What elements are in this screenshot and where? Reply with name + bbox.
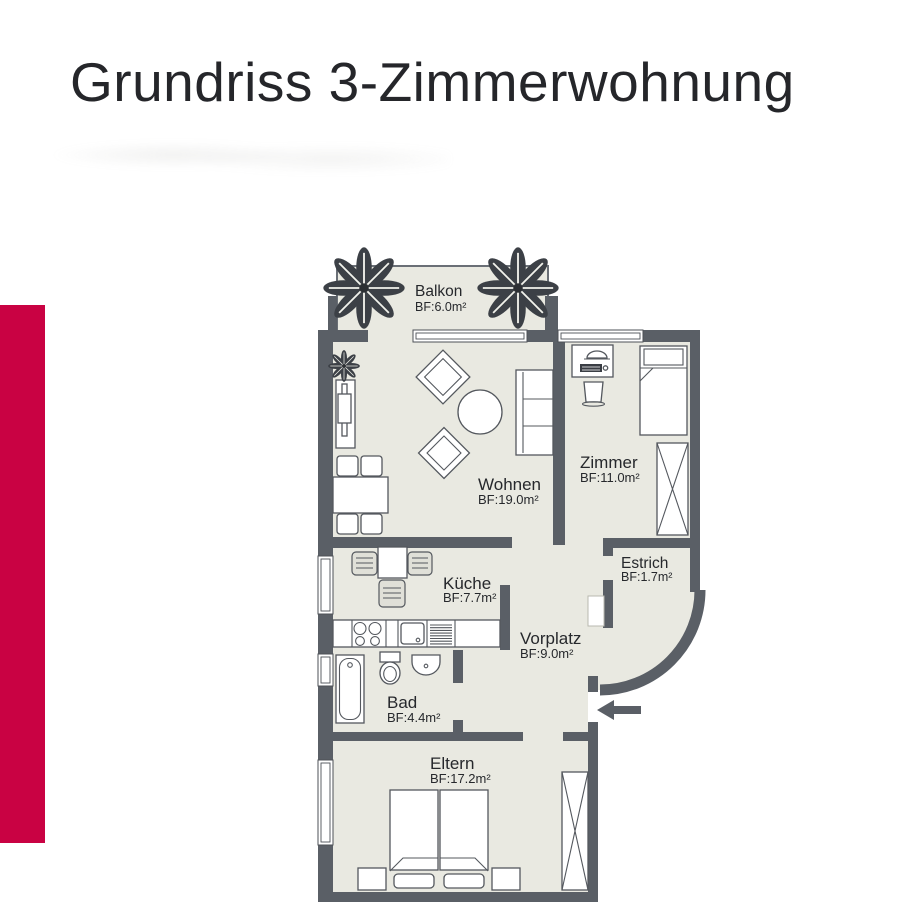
window-bad bbox=[318, 654, 333, 686]
plant-icon bbox=[323, 247, 404, 328]
window-eltern bbox=[318, 760, 333, 845]
estrich-door-leaf bbox=[588, 596, 604, 626]
mouse-icon bbox=[603, 366, 607, 370]
room-area-estrich: BF:1.7m² bbox=[621, 570, 672, 584]
toilet-icon bbox=[380, 652, 400, 684]
entrance-door-opening bbox=[588, 692, 598, 722]
room-area-bad: BF:4.4m² bbox=[387, 710, 441, 725]
sink-icon bbox=[401, 623, 424, 644]
floor-plan-drawing: Balkon BF:6.0m² Wohnen BF:19.0m² Zimmer … bbox=[0, 0, 920, 922]
room-label-balkon: Balkon bbox=[415, 283, 462, 300]
window-zimmer bbox=[558, 330, 643, 342]
wardrobe-icon bbox=[562, 772, 588, 890]
dining-table-icon bbox=[333, 456, 388, 534]
plant-icon bbox=[328, 350, 360, 382]
room-area-wohnen: BF:19.0m² bbox=[478, 492, 539, 507]
coffee-table-icon bbox=[458, 390, 502, 434]
office-chair-icon bbox=[583, 382, 605, 406]
window-wohnen bbox=[413, 330, 527, 342]
nightstand-icon bbox=[358, 868, 386, 890]
desk-icon bbox=[572, 345, 613, 377]
keyboard-icon bbox=[580, 364, 602, 372]
bathtub-icon bbox=[336, 655, 364, 723]
window-kueche bbox=[318, 556, 333, 614]
sofa-icon bbox=[516, 370, 553, 455]
washbasin-icon bbox=[412, 655, 440, 675]
room-area-vorplatz: BF:9.0m² bbox=[520, 646, 574, 661]
room-area-eltern: BF:17.2m² bbox=[430, 771, 491, 786]
plant-icon bbox=[477, 247, 558, 328]
sideboard-icon bbox=[336, 380, 355, 448]
pillow-icon bbox=[394, 874, 434, 888]
pillow-icon bbox=[444, 874, 484, 888]
room-area-zimmer: BF:11.0m² bbox=[580, 470, 640, 485]
nightstand-icon bbox=[492, 868, 520, 890]
bed-icon bbox=[640, 346, 687, 435]
room-area-balkon: BF:6.0m² bbox=[415, 300, 466, 314]
kitchen-counter-icon bbox=[333, 620, 500, 647]
entry-arrow-icon bbox=[597, 700, 641, 720]
floor-plan-page: Grundriss 3-Zimmerwohnung bbox=[0, 0, 920, 922]
room-area-kueche: BF:7.7m² bbox=[443, 590, 497, 605]
wardrobe-icon bbox=[657, 443, 688, 535]
